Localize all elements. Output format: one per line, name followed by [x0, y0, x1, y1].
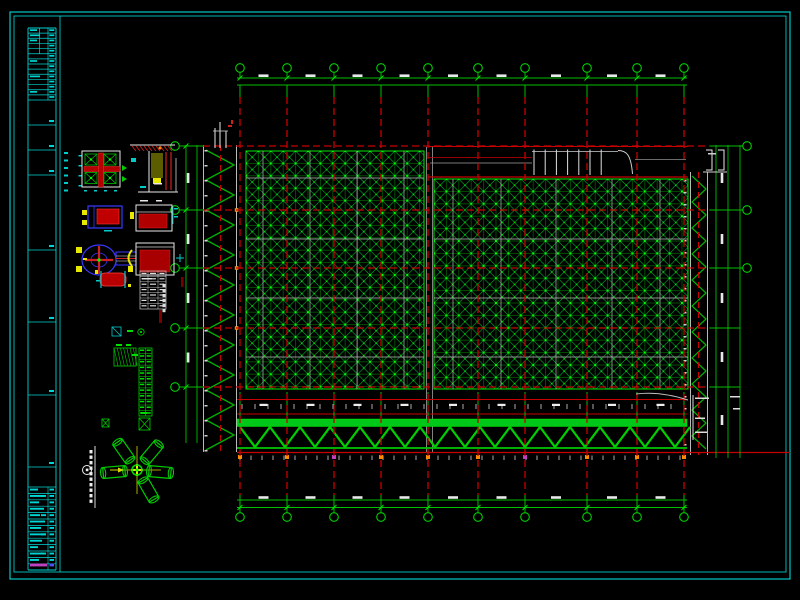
bearing-elevation-white-red: [130, 200, 178, 231]
member-schedule-table: [139, 348, 152, 430]
edge-truss-left: [204, 145, 239, 452]
mini-schedule-table: [140, 271, 166, 312]
bearing-section-red: [128, 243, 184, 280]
drawing-canvas[interactable]: [0, 0, 800, 600]
space-frame-panels: [246, 151, 688, 389]
bearing-plan-detail: [64, 151, 127, 192]
roof-strip: [428, 147, 688, 178]
embed-section-detail: [130, 145, 178, 192]
pipe-sleeve-detail: [95, 270, 131, 288]
bearing-side-elevation-blue: [82, 206, 122, 232]
title-block: [28, 28, 56, 570]
detail-callout-1: [83, 446, 96, 508]
cad-application-window: [0, 0, 800, 600]
ball-node-fan-detail: [100, 419, 174, 504]
